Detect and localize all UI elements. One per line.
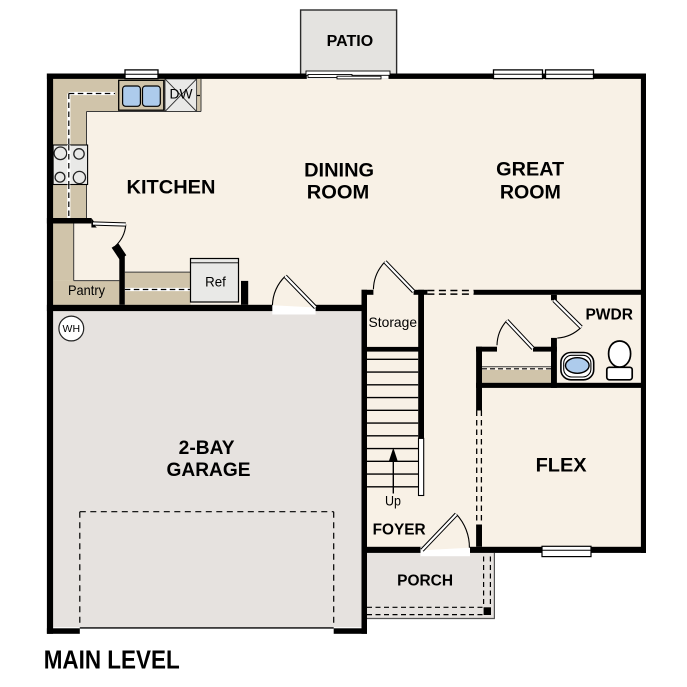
svg-text:Pantry: Pantry (68, 282, 105, 298)
svg-text:FOYER: FOYER (373, 521, 426, 538)
svg-text:MAIN LEVEL: MAIN LEVEL (44, 645, 180, 675)
svg-text:ROOM: ROOM (500, 182, 561, 203)
svg-text:PWDR: PWDR (585, 307, 633, 324)
svg-text:DW: DW (170, 86, 194, 102)
svg-text:GARAGE: GARAGE (167, 460, 251, 481)
svg-text:KITCHEN: KITCHEN (127, 178, 216, 199)
svg-text:ROOM: ROOM (307, 183, 370, 204)
svg-text:Ref: Ref (205, 274, 226, 290)
svg-text:2-BAY: 2-BAY (179, 438, 235, 459)
svg-text:WH: WH (63, 323, 81, 335)
svg-text:PATIO: PATIO (327, 33, 374, 50)
svg-text:DINING: DINING (304, 161, 374, 182)
svg-text:PORCH: PORCH (397, 572, 453, 589)
svg-text:FLEX: FLEX (536, 456, 587, 477)
svg-text:Storage: Storage (369, 314, 418, 330)
svg-text:Up: Up (385, 493, 401, 509)
svg-text:GREAT: GREAT (496, 160, 564, 181)
